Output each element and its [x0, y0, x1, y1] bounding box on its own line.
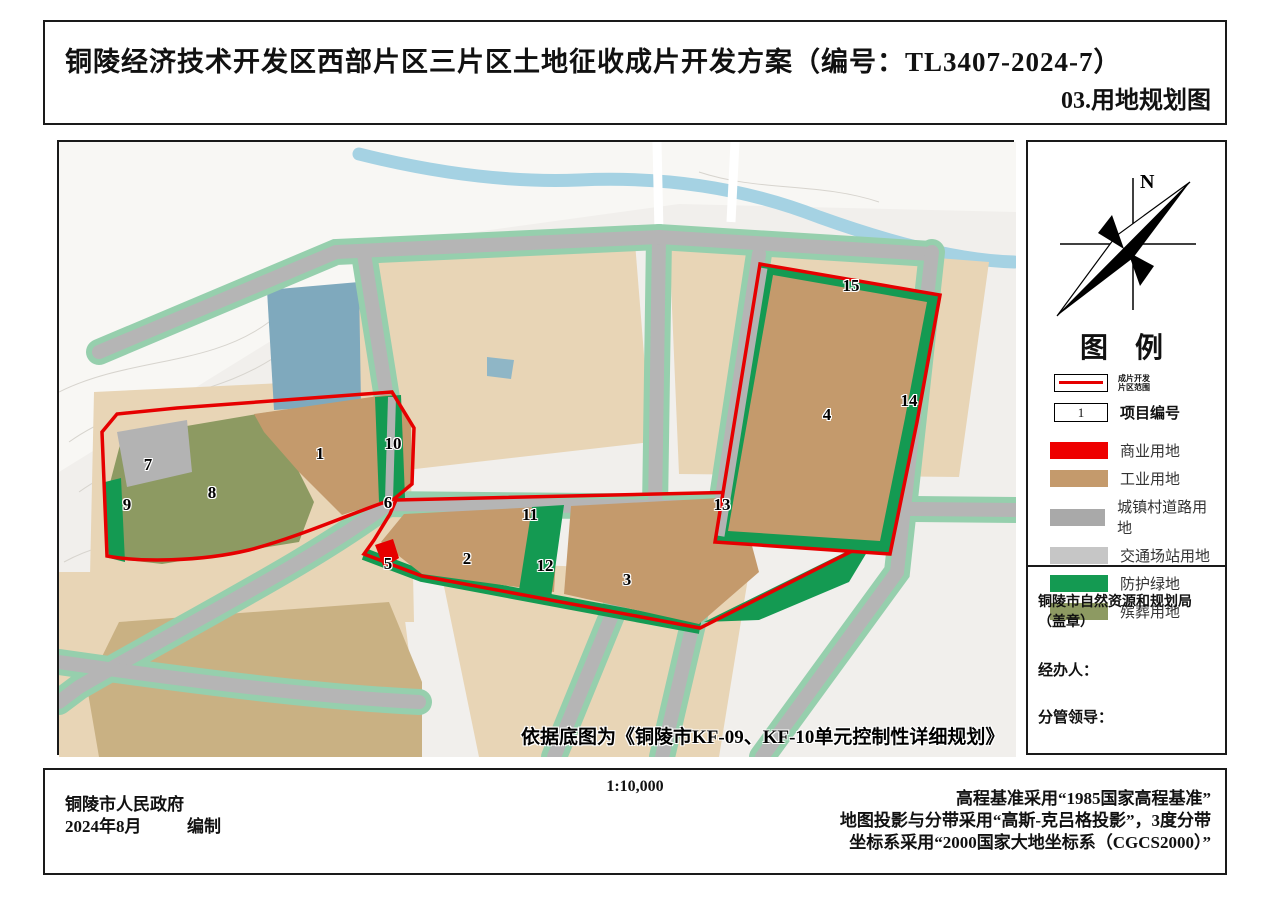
north-letter: N	[1140, 171, 1155, 193]
legend-swatch	[1050, 470, 1108, 487]
project-zone-label-2: 2	[463, 549, 472, 569]
project-zone-label-8: 8	[208, 483, 217, 503]
map-label-layer: 123456789101112131415	[59, 142, 1012, 753]
sheet-subtitle: 03.用地规划图	[1061, 80, 1211, 115]
map-frame[interactable]: 依据底图为《铜陵市KF-09、KF-10单元控制性详细规划》 123456789…	[57, 140, 1014, 755]
datum-note-2: 地图投影与分带采用“高斯-克吕格投影”，3度分带	[840, 810, 1211, 832]
legend-section: N 图 例 成片开发 片区范围 1 项目编号 商业用地工业用地城镇村道路用地交通…	[1028, 142, 1225, 567]
legend-item: 商业用地	[1050, 440, 1217, 461]
legend-title: 图 例	[1028, 326, 1225, 366]
legend-item: 工业用地	[1050, 468, 1217, 489]
footer-box: 铜陵市人民政府 2024年8月 编制 1:10,000 高程基准采用“1985国…	[43, 768, 1227, 875]
project-zone-label-5: 5	[384, 554, 393, 574]
project-zone-label-10: 10	[385, 434, 402, 454]
datum-note-1: 高程基准采用“1985国家高程基准”	[840, 788, 1211, 810]
legend-boundary-row: 成片开发 片区范围	[1054, 374, 1150, 392]
legend-swatch	[1050, 547, 1108, 564]
sidebar: N 图 例 成片开发 片区范围 1 项目编号 商业用地工业用地城镇村道路用地交通…	[1026, 140, 1227, 755]
project-zone-label-6: 6	[384, 493, 393, 513]
project-zone-label-1: 1	[316, 444, 325, 464]
boundary-swatch	[1054, 374, 1108, 392]
stamp-handler: 经办人：	[1038, 659, 1215, 680]
stamp-section: 铜陵市自然资源和规划局（盖章） 经办人： 分管领导：	[1028, 567, 1225, 753]
legend-label: 交通场站用地	[1120, 545, 1210, 566]
project-zone-label-15: 15	[843, 276, 860, 296]
project-zone-label-7: 7	[144, 455, 153, 475]
page-title: 铜陵经济技术开发区西部片区三片区土地征收成片开发方案（编号：TL3407-202…	[65, 40, 1122, 79]
stamp-agency: 铜陵市自然资源和规划局（盖章）	[1038, 591, 1215, 631]
needle-white-half	[1057, 182, 1190, 316]
boundary-label: 成片开发 片区范围	[1118, 374, 1150, 392]
footer-org-block: 铜陵市人民政府 2024年8月	[65, 794, 184, 838]
legend-label: 工业用地	[1120, 468, 1180, 489]
project-zone-label-13: 13	[714, 495, 731, 515]
page: 铜陵经济技术开发区西部片区三片区土地征收成片开发方案（编号：TL3407-202…	[0, 0, 1269, 897]
footer-date: 2024年8月	[65, 816, 184, 838]
north-arrow: N	[1028, 170, 1225, 320]
project-zone-label-11: 11	[522, 505, 538, 525]
footer-compiled: 编制	[187, 812, 221, 837]
planning-map[interactable]: 依据底图为《铜陵市KF-09、KF-10单元控制性详细规划》 123456789…	[59, 142, 1012, 753]
project-zone-label-4: 4	[823, 405, 832, 425]
legend-project-row: 1 项目编号	[1054, 402, 1180, 423]
footer-org: 铜陵市人民政府	[65, 794, 184, 816]
project-zone-label-14: 14	[901, 391, 918, 411]
legend-item: 城镇村道路用地	[1050, 496, 1217, 538]
project-zone-label-3: 3	[623, 570, 632, 590]
footer-datum-notes: 高程基准采用“1985国家高程基准” 地图投影与分带采用“高斯-克吕格投影”，3…	[840, 788, 1211, 854]
project-number-label: 项目编号	[1120, 402, 1180, 423]
legend-label: 商业用地	[1120, 440, 1180, 461]
datum-note-3: 坐标系采用“2000国家大地坐标系（CGCS2000）”	[840, 832, 1211, 854]
legend-swatch	[1050, 509, 1105, 526]
project-zone-label-9: 9	[123, 495, 132, 515]
legend-swatch	[1050, 442, 1108, 459]
legend-item: 交通场站用地	[1050, 545, 1217, 566]
title-box: 铜陵经济技术开发区西部片区三片区土地征收成片开发方案（编号：TL3407-202…	[43, 20, 1227, 125]
project-zone-label-12: 12	[537, 556, 554, 576]
stamp-leader: 分管领导：	[1038, 706, 1215, 727]
legend-label: 城镇村道路用地	[1117, 496, 1217, 538]
project-number-swatch: 1	[1054, 403, 1108, 422]
